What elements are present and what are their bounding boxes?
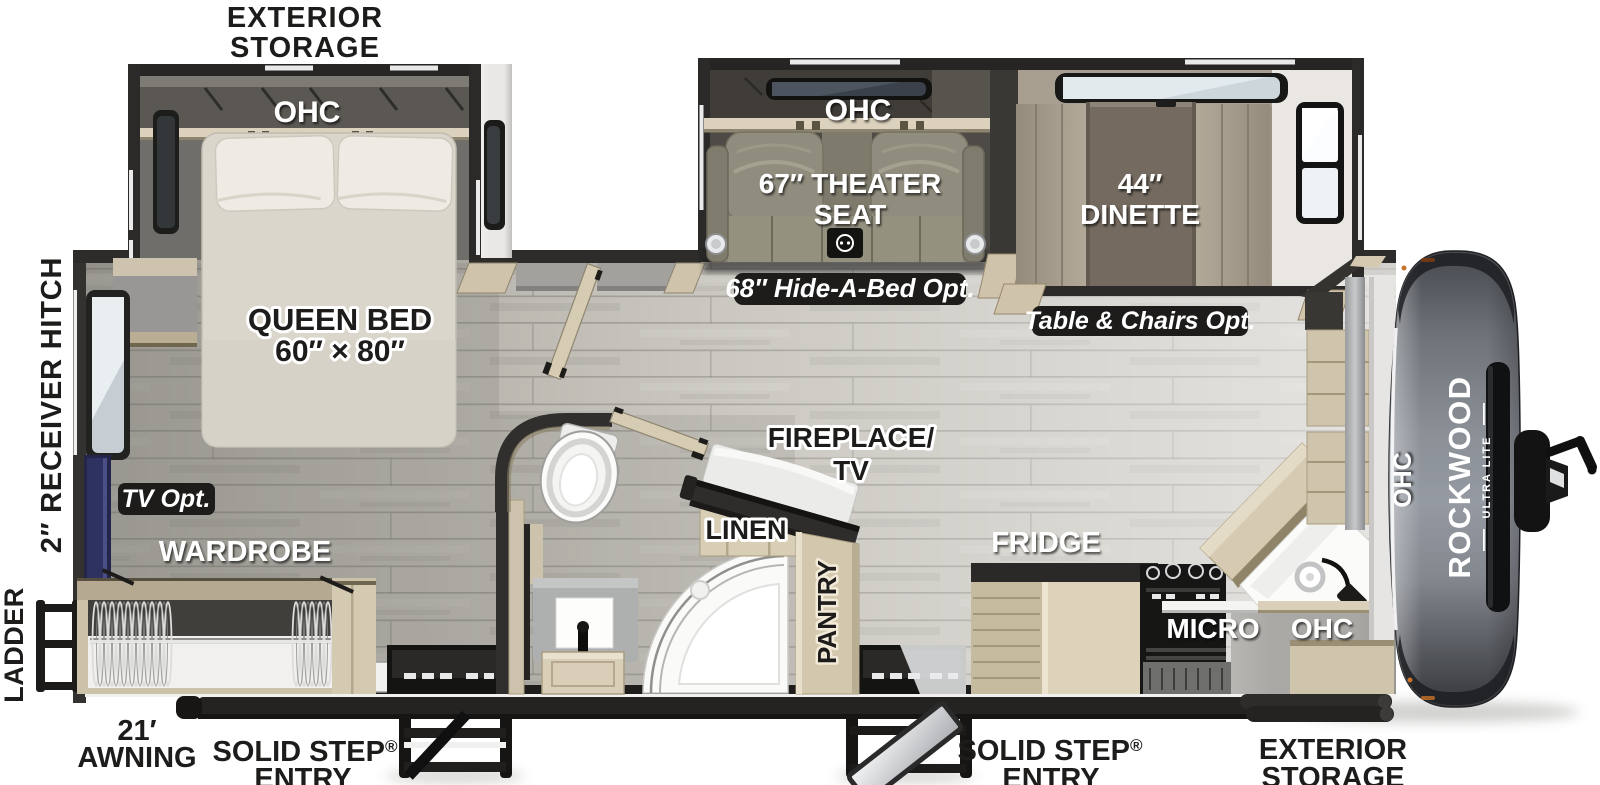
svg-text:AWNING: AWNING [77, 742, 196, 774]
svg-text:FRIDGE: FRIDGE [991, 527, 1101, 559]
svg-text:MICRO: MICRO [1166, 613, 1259, 644]
svg-text:QUEEN BED: QUEEN BED [248, 302, 432, 337]
svg-text:TV Opt.: TV Opt. [122, 485, 211, 513]
svg-text:ULTRA LITE: ULTRA LITE [1481, 436, 1493, 519]
svg-text:Table & Chairs Opt.: Table & Chairs Opt. [1024, 307, 1255, 335]
svg-text:ROCKWOOD: ROCKWOOD [1442, 375, 1477, 578]
svg-text:STORAGE: STORAGE [230, 32, 380, 64]
svg-text:LINEN: LINEN [706, 515, 787, 545]
svg-text:WARDROBE: WARDROBE [159, 536, 331, 568]
svg-text:68″ Hide-A-Bed Opt.: 68″ Hide-A-Bed Opt. [725, 273, 974, 303]
svg-text:DINETTE: DINETTE [1080, 199, 1200, 230]
svg-text:ENTRY: ENTRY [1002, 763, 1099, 785]
svg-text:OHC: OHC [274, 96, 341, 129]
svg-text:60″ × 80″: 60″ × 80″ [275, 335, 405, 368]
svg-text:2″ RECEIVER HITCH: 2″ RECEIVER HITCH [36, 257, 68, 554]
svg-text:PANTRY: PANTRY [812, 560, 842, 664]
svg-text:FIREPLACE/: FIREPLACE/ [768, 422, 935, 453]
svg-text:TV: TV [833, 455, 869, 486]
svg-text:ENTRY: ENTRY [254, 763, 351, 785]
svg-text:OHC: OHC [1291, 613, 1353, 644]
svg-text:OHC: OHC [1389, 452, 1417, 508]
svg-text:STORAGE: STORAGE [1262, 762, 1405, 785]
svg-text:44″: 44″ [1118, 168, 1163, 199]
svg-text:OHC: OHC [825, 94, 892, 127]
svg-text:LADDER: LADDER [0, 587, 29, 703]
svg-text:SEAT: SEAT [814, 199, 887, 230]
svg-text:67″ THEATER: 67″ THEATER [759, 168, 941, 199]
svg-text:EXTERIOR: EXTERIOR [227, 2, 383, 34]
